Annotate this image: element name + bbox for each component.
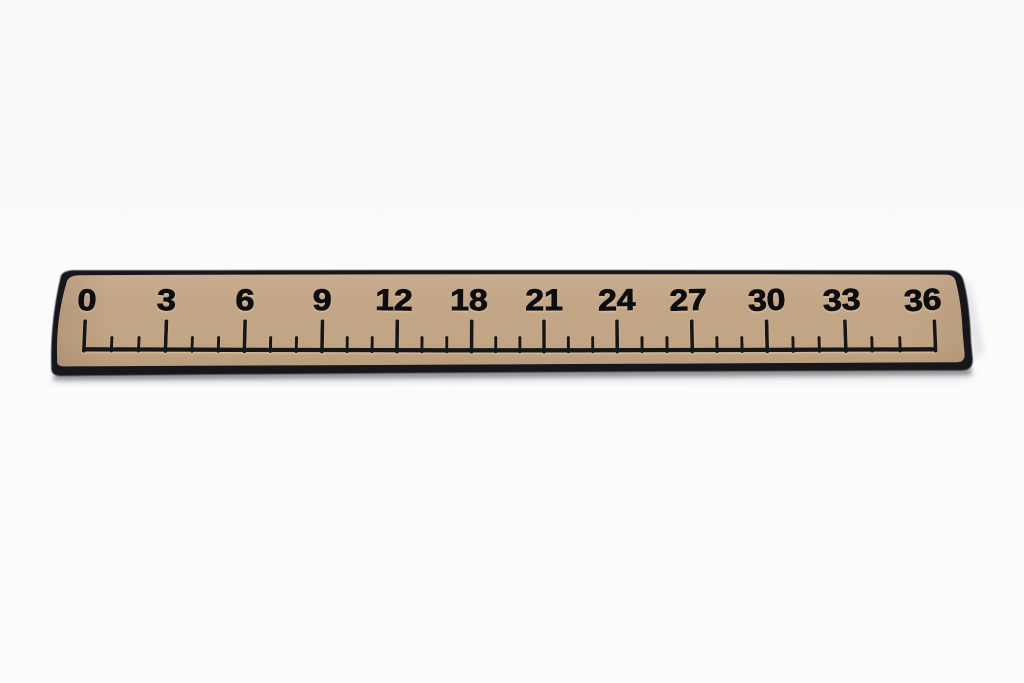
svg-text:30: 30 [747,284,786,318]
svg-text:21: 21 [525,284,563,317]
svg-text:12: 12 [375,284,413,318]
svg-text:3: 3 [156,284,177,318]
svg-text:33: 33 [822,283,861,318]
svg-text:24: 24 [598,284,636,318]
svg-text:18: 18 [450,284,488,317]
svg-text:27: 27 [669,284,707,318]
svg-text:0: 0 [76,284,97,318]
svg-text:36: 36 [903,283,942,318]
svg-text:6: 6 [235,284,255,318]
svg-text:9: 9 [312,284,332,318]
